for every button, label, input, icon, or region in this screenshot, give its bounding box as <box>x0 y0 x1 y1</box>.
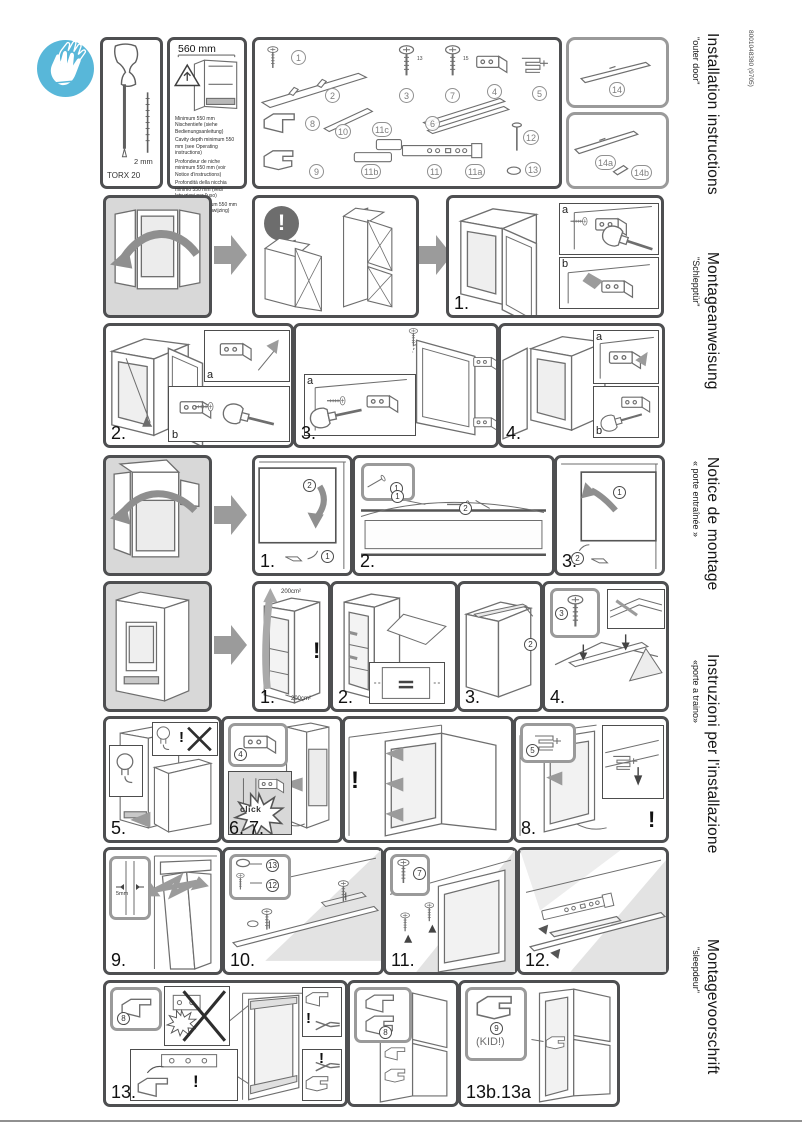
step11-number: 11. <box>391 950 415 971</box>
exclamation-mark: ! <box>351 767 359 795</box>
kid-label: (KID!) <box>476 1036 505 1048</box>
exclamation-mark: ! <box>193 1072 199 1092</box>
screw3-length: 13 <box>417 56 423 62</box>
part-14-panel: 14 <box>566 37 669 108</box>
torx-label: TORX 20 <box>107 171 140 180</box>
part-badge-4: 4 <box>487 84 502 99</box>
row4-step2-panel: 2. <box>330 581 458 712</box>
row4-intro-panel <box>103 581 212 712</box>
marker-4: 4 <box>234 748 247 761</box>
detail-a-art <box>205 331 289 381</box>
plug-warning-art <box>153 723 217 755</box>
tools-panel: 2 mm TORX 20 <box>100 37 163 189</box>
part-badge-2: 2 <box>325 88 340 103</box>
flow-arrow-3 <box>214 492 248 538</box>
exclamation-mark: ! <box>648 807 655 833</box>
marker-8: 8 <box>379 1026 392 1039</box>
step2-detail-a: a <box>204 330 290 382</box>
exclamation-mark: ! <box>306 1010 311 1027</box>
marker-9: 9 <box>490 1022 503 1035</box>
part-badge-3: 3 <box>399 88 414 103</box>
step13-number: 13. <box>111 1082 136 1103</box>
row6-step9-panel: 5mm 9. <box>103 847 223 975</box>
pin-ref-art <box>364 466 412 498</box>
note-en: Cavity depth minimum 550 mm (see Operati… <box>175 137 241 156</box>
step12-number: 12. <box>525 950 550 971</box>
part-badge-1: 1 <box>291 50 306 65</box>
gap-size-label: 5mm <box>116 891 128 897</box>
marker-13: 13 <box>266 859 279 872</box>
row3-step1-number: 1. <box>260 551 275 572</box>
detail-a-art <box>305 375 415 435</box>
title-en: Installation instructions <box>703 33 721 195</box>
clip-detail-art <box>603 726 663 798</box>
row7-step13-panel: 8 ! ! ! 13. <box>103 980 348 1107</box>
row3-intro-panel <box>103 455 212 576</box>
step67-number: 6. 7. <box>229 818 264 839</box>
row3-step1-panel: 2 1 1. <box>252 455 353 576</box>
row1-intro-panel <box>103 195 212 318</box>
row3-step3-panel: 1 2 3. <box>554 455 665 576</box>
part-badge-6: 6 <box>425 116 440 131</box>
row6-step11-panel: 7 11. <box>383 847 518 975</box>
installation-instruction-sheet: 2 mm TORX 20 560 mm Minimum 550 mm Nisch… <box>0 0 802 1134</box>
wrong-fit-art <box>165 987 229 1045</box>
cap-screw-ref-art <box>232 857 288 897</box>
step13b-number: 13b.13a <box>466 1082 531 1103</box>
exclamation-mark: ! <box>319 1050 324 1067</box>
hinge-cover-detail: ! <box>130 1049 238 1101</box>
gap-detail: 5mm <box>109 856 151 920</box>
title-de: Montageanweisung <box>703 252 721 390</box>
title-nl: Montagevoorschrift <box>703 939 721 1074</box>
step4-detail-a: a <box>593 330 659 384</box>
row2-step2-panel: a b 2. <box>103 323 294 448</box>
part-badge-7: 7 <box>445 88 460 103</box>
fittings-parts-panel: 13 15 1 2 3 7 4 5 8 10 11c 6 12 9 11b 11… <box>252 37 562 189</box>
detail-b-art <box>169 387 289 441</box>
row7-covers-panel: 8 <box>347 980 459 1107</box>
part-14ab-panel: 14a 14b <box>566 112 669 189</box>
part-badge-10: 10 <box>335 124 351 139</box>
marker-1: 1 <box>321 550 334 563</box>
freezer-door-illustration <box>106 458 209 573</box>
kid-cover-ref: 9 (KID!) <box>465 987 527 1061</box>
marker-1b: 1 <box>391 490 404 503</box>
step10-number: 10. <box>230 950 255 971</box>
row3-step2-number: 2. <box>360 551 375 572</box>
cover-tool-detail-top: ! <box>302 987 342 1037</box>
step3-number: 3. <box>301 423 316 444</box>
row1-step1-panel: a b 1. <box>446 195 664 318</box>
bracket-ref: 4 <box>228 723 288 767</box>
step4-number: 4. <box>506 423 521 444</box>
marker-8: 8 <box>117 1012 130 1025</box>
part-badge-5: 5 <box>532 86 547 101</box>
marker-1: 1 <box>613 486 626 499</box>
detail-a-art <box>594 331 658 383</box>
row5-door-align-panel: ! <box>342 716 514 843</box>
screw7-length: 15 <box>463 56 469 62</box>
marker-12: 12 <box>266 879 279 892</box>
vent-area-top: 200cm² <box>281 589 301 595</box>
rail-profile-detail <box>607 589 665 629</box>
part-badge-9: 9 <box>309 164 324 179</box>
row4-step2-number: 2. <box>338 687 353 708</box>
row3-step3-number: 3. <box>562 551 577 572</box>
level-detail-art <box>370 663 444 703</box>
level-detail <box>369 662 445 704</box>
detail-b-art <box>594 387 658 437</box>
row2-step3-panel: a 3. <box>293 323 499 448</box>
detail-a-art <box>560 204 658 254</box>
marker-5: 5 <box>526 744 539 757</box>
subtitle-en: "outer door" <box>691 37 701 84</box>
step1-number: 1. <box>454 293 469 314</box>
part-badge-11a: 11a <box>465 164 485 179</box>
hinge-cover-art <box>131 1050 237 1100</box>
part-badge-13: 13 <box>525 162 541 177</box>
row4-step4-panel: 3 4. <box>542 581 669 712</box>
covers-ref: 8 <box>354 987 412 1043</box>
gloves-glyph <box>37 40 94 97</box>
note-fr: Profondeur de niche minimum 550 mm (voir… <box>175 159 241 178</box>
row5-step5-panel: ! 5. <box>103 716 222 843</box>
cavity-depth-panel: 560 mm Minimum 550 mm Nischentiefe (sieh… <box>167 37 247 189</box>
part-badge-12: 12 <box>523 130 539 145</box>
row7-step13b-panel: 9 (KID!) 13b.13a <box>458 980 620 1107</box>
exclamation-mark: ! <box>313 638 320 664</box>
title-fr: Notice de montage <box>703 457 721 591</box>
row4-step3-panel: 2 3. <box>457 581 543 712</box>
row6-step10-panel: 13 12 10. <box>222 847 384 975</box>
cap-screw-ref: 13 12 <box>229 854 291 900</box>
row3-step2-part-ref: 1 <box>361 463 415 501</box>
flow-arrow-1 <box>214 232 248 278</box>
door-align-illustration <box>345 719 511 840</box>
wrong-fit-detail <box>164 986 230 1046</box>
step5-number: 5. <box>111 818 126 839</box>
step4-detail-b: b <box>593 386 659 438</box>
part-badge-14b: 14b <box>631 165 652 180</box>
row4-step1-number: 1. <box>260 687 275 708</box>
step9-number: 9. <box>111 950 126 971</box>
step3-detail-a: a <box>304 374 416 436</box>
marker-2: 2 <box>303 479 316 492</box>
part-badge-11b: 11b <box>361 164 381 179</box>
row5-step8-panel: 5 ! 8. <box>513 716 669 843</box>
part-badge-14a: 14a <box>595 155 616 170</box>
subtitle-fr: « porte entraînée » <box>691 461 701 537</box>
subtitle-it: «porte a traino» <box>691 660 701 723</box>
row2-step4-panel: a b 4. <box>498 323 665 448</box>
marker-7: 7 <box>413 867 426 880</box>
subtitle-nl: "sleepdeur" <box>691 947 701 993</box>
bit-size-label: 2 mm <box>134 157 153 166</box>
row5-step67-panel: 4 click 6. 7. <box>221 716 343 843</box>
row1-warning-panel: ! <box>252 195 419 318</box>
step1-detail-a: a <box>559 203 659 255</box>
gap-detail-art <box>112 859 148 917</box>
plug-detail-art <box>110 746 142 796</box>
cover-tool-detail-bottom: ! <box>302 1049 342 1101</box>
note-de: Minimum 550 mm Nischentiefe (siehe Bedie… <box>175 116 241 135</box>
appliance-types-illustration <box>255 198 416 315</box>
row4-step4-number: 4. <box>550 687 565 708</box>
marker-2: 2 <box>524 638 537 651</box>
part-badge-8: 8 <box>305 116 320 131</box>
step8-number: 8. <box>521 818 536 839</box>
part-badge-11c: 11c <box>372 122 392 137</box>
footer-rule <box>0 1120 802 1122</box>
vent-area-bottom: 200cm² <box>291 696 311 702</box>
clip-ref: 5 <box>520 723 576 763</box>
exclamation-mark: ! <box>179 729 184 746</box>
step2-detail-b: b <box>168 386 290 442</box>
plug-warning-detail: ! <box>152 722 218 756</box>
part-badge-14: 14 <box>609 82 625 97</box>
screw7-ref: 7 <box>390 854 430 896</box>
rail-profile-art <box>608 590 664 628</box>
click-label: click <box>240 804 261 814</box>
clip-detail <box>602 725 664 799</box>
marker-2: 2 <box>459 502 472 515</box>
row4-step3-number: 3. <box>465 687 480 708</box>
flow-arrow-4 <box>214 622 248 668</box>
door-swap-illustration <box>106 198 209 315</box>
row4-step1-panel: 200cm² 200cm² ! 1. <box>252 581 331 712</box>
detail-b-art <box>560 258 658 308</box>
row6-step12-panel: 12. <box>517 847 669 975</box>
protective-gloves-icon <box>37 40 94 97</box>
built-in-illustration <box>106 584 209 709</box>
subtitle-de: "Schlepptür" <box>691 257 701 306</box>
document-number: 8001048380 (9705) <box>747 30 754 87</box>
row3-step2-panel: 1 1 2 2. <box>352 455 555 576</box>
step1-detail-b: b <box>559 257 659 309</box>
cover8-ref: 8 <box>110 987 162 1031</box>
plug-detail <box>109 745 143 797</box>
step2-number: 2. <box>111 423 126 444</box>
title-it: Instruzioni per l'installazione <box>703 654 721 854</box>
